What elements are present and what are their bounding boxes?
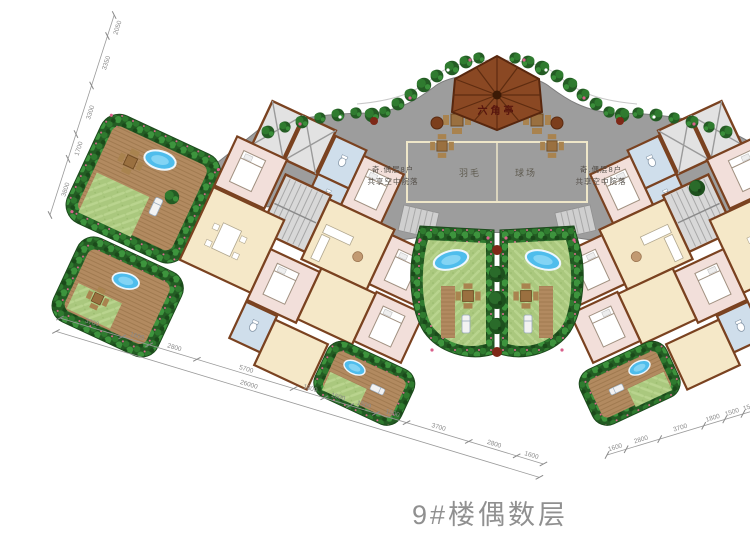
dim-value: 2800: [633, 434, 649, 445]
floor-plan-svg: 羽毛 球场 六角亭 奇.偶层8户: [0, 0, 750, 560]
dim-value: 1800: [705, 413, 721, 424]
dim-value: 3350: [101, 55, 112, 71]
dim-value: 3300: [85, 104, 96, 120]
note-line1: 奇.偶层8户: [372, 164, 414, 174]
court-label-left: 羽毛: [459, 167, 481, 178]
dim-value: 3700: [431, 422, 447, 433]
dim-value: 1700: [74, 140, 85, 156]
dim-value: 1500: [742, 401, 750, 412]
court-label-right: 球场: [515, 167, 537, 178]
central-garden-left: [411, 226, 494, 357]
pavilion-roof-peak: [493, 91, 502, 100]
dim-value: 2800: [166, 342, 182, 353]
note-line2: 共享空中院落: [368, 176, 419, 186]
central-garden-right: [500, 226, 583, 357]
dim-value: 5700: [238, 364, 254, 375]
dim-value: 1600: [523, 450, 539, 461]
pavilion-label: 六角亭: [478, 104, 517, 117]
dim-value: 3700: [672, 423, 688, 434]
dim-value: 1500: [724, 407, 740, 418]
corner-bush: [165, 190, 179, 204]
dim-value: 2800: [486, 439, 502, 450]
corner-tree: [689, 180, 705, 196]
dim-value: 2050: [112, 20, 123, 36]
note-line1: 奇.偶层8户: [580, 164, 622, 174]
note-line2: 共享空中院落: [576, 176, 627, 186]
plan-title: 9#楼偶数层: [412, 500, 568, 530]
floor-plan-page: 羽毛 球场 六角亭 奇.偶层8户: [0, 0, 750, 560]
dim-total: 26000: [239, 379, 259, 391]
dim-value: 1600: [607, 442, 623, 453]
